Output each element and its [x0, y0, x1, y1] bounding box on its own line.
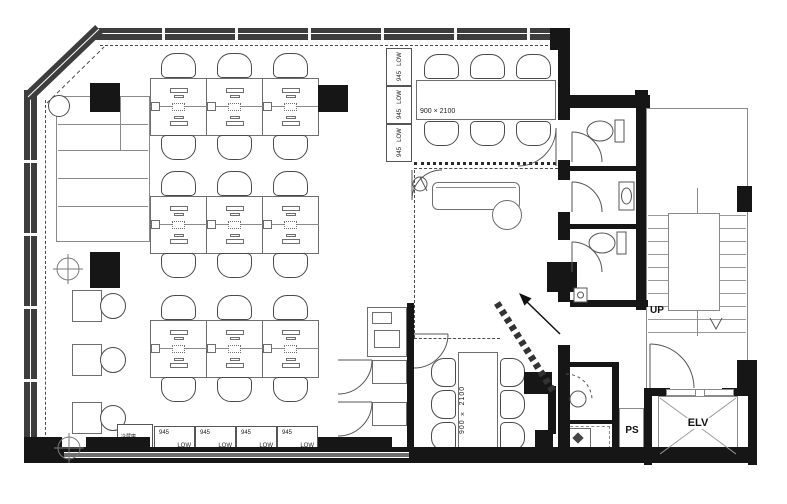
side-table — [72, 344, 102, 376]
monitor — [226, 239, 244, 244]
side-table — [72, 402, 102, 434]
low-cabinet: LOW945 — [386, 124, 412, 162]
desk-tray — [228, 221, 241, 229]
keyboard — [230, 234, 240, 237]
low-cabinet: LOW945 — [386, 86, 412, 124]
chair — [516, 121, 551, 146]
chair — [161, 295, 196, 320]
entry-wall — [535, 430, 553, 450]
keyboard — [230, 116, 240, 119]
chair — [500, 390, 525, 419]
elevator-label: ELV — [672, 418, 724, 429]
chair — [273, 53, 308, 78]
chair — [516, 54, 551, 79]
keyboard — [174, 337, 184, 340]
monitor — [282, 330, 300, 335]
door-arc-cabinet-1 — [338, 360, 372, 394]
elevator-east-wall — [748, 388, 757, 465]
keyboard — [286, 234, 296, 237]
monitor — [170, 121, 188, 126]
elevator-west-wall — [644, 388, 652, 465]
chair — [217, 171, 252, 196]
entry-arrow — [524, 299, 560, 334]
entry-arrow-head — [519, 293, 532, 306]
column — [524, 372, 552, 394]
chair — [161, 377, 196, 402]
round-chair — [100, 293, 126, 319]
chair — [161, 135, 196, 160]
chair — [217, 135, 252, 160]
keyboard — [230, 358, 240, 361]
monitor — [226, 206, 244, 211]
desk-tray — [172, 345, 185, 353]
bottom-wall-corner — [24, 437, 62, 449]
glass-partition — [414, 338, 500, 339]
column — [635, 90, 648, 108]
keyboard — [230, 213, 240, 216]
service-room-wall — [612, 362, 619, 462]
meeting-table-size-label: 900 × 2100 — [420, 108, 455, 115]
toilet-divider — [570, 166, 636, 171]
round-table — [492, 200, 522, 230]
desk-phone — [207, 220, 216, 229]
cabinet-size-label: 945 — [200, 430, 210, 436]
chair — [273, 295, 308, 320]
service-room-wall — [558, 362, 616, 367]
monitor — [170, 88, 188, 93]
desk-tray — [172, 221, 185, 229]
glass-partition — [414, 168, 558, 169]
cabinet-size-label: 945 — [397, 66, 403, 86]
chair — [217, 377, 252, 402]
chair — [217, 295, 252, 320]
chair — [470, 121, 505, 146]
top-window-wall — [92, 28, 558, 40]
keyboard — [230, 337, 240, 340]
elevator-sill — [704, 389, 734, 396]
toilet-divider — [570, 300, 648, 307]
chair — [273, 135, 308, 160]
meeting-room-wall — [407, 303, 414, 463]
desk-tray — [284, 345, 297, 353]
column — [90, 252, 120, 288]
glass-partition — [414, 162, 556, 165]
toilet-east-wall — [636, 108, 646, 310]
cabinet-size-label: 945 — [159, 430, 169, 436]
chamfer-wall — [28, 29, 99, 97]
side-table — [72, 290, 102, 322]
desk-tray — [228, 345, 241, 353]
desk-phone — [207, 344, 216, 353]
toilet-divider — [570, 224, 636, 229]
cabinet-size-label: 945 — [241, 430, 251, 436]
monitor — [170, 206, 188, 211]
setback-line-top — [100, 45, 558, 46]
monitor — [282, 121, 300, 126]
sofa-seat-line — [436, 187, 516, 188]
glass-partition — [414, 170, 415, 338]
keyboard — [174, 95, 184, 98]
cabinet-size-label: 945 — [282, 430, 292, 436]
chair — [424, 54, 459, 79]
service-sink — [570, 391, 586, 407]
column — [90, 83, 120, 112]
pipe-shaft-label: PS — [620, 426, 644, 436]
desk-phone — [151, 344, 160, 353]
keyboard — [174, 234, 184, 237]
core-west-wall — [558, 160, 570, 180]
column — [86, 437, 150, 449]
pantry-wall — [558, 420, 616, 424]
keyboard — [286, 337, 296, 340]
keyboard — [286, 95, 296, 98]
desk-phone — [151, 220, 160, 229]
monitor — [282, 206, 300, 211]
monitor — [226, 88, 244, 93]
desk-tray — [172, 103, 185, 111]
core-west-wall — [558, 212, 570, 240]
floor-plan: 900 × 2100 LOW945LOW945LOW945 900 × 2100… — [0, 0, 787, 504]
monitor — [282, 239, 300, 244]
door-arc-cabinet-2 — [338, 402, 372, 436]
desk-phone — [207, 102, 216, 111]
low-cabinet: LOW945 — [386, 48, 412, 86]
chair — [217, 53, 252, 78]
storage-cabinet — [372, 402, 407, 426]
stair-landing — [668, 213, 720, 311]
desk-phone — [263, 344, 272, 353]
monitor — [282, 363, 300, 368]
column — [318, 437, 392, 449]
meeting-table-size-label: 900 × 2100 — [459, 354, 466, 434]
monitor — [170, 330, 188, 335]
chair — [500, 358, 525, 387]
chair — [431, 390, 456, 419]
toilet-tank — [617, 232, 626, 254]
keyboard — [230, 95, 240, 98]
door-arc-toilet-1 — [572, 132, 602, 162]
desk-phone — [151, 102, 160, 111]
monitor — [170, 363, 188, 368]
monitor — [282, 88, 300, 93]
column — [737, 186, 752, 212]
storage-cabinet — [372, 360, 407, 384]
column — [737, 360, 757, 390]
chair — [273, 377, 308, 402]
column — [547, 262, 577, 292]
desk-tray — [284, 103, 297, 111]
monitor — [226, 330, 244, 335]
door-arc-washroom — [572, 182, 602, 212]
chair — [424, 121, 459, 146]
keyboard — [286, 358, 296, 361]
counter — [56, 96, 150, 242]
chair — [217, 253, 252, 278]
keyboard — [174, 116, 184, 119]
toilet-bowl — [587, 121, 613, 141]
monitor — [226, 363, 244, 368]
stool — [48, 95, 70, 117]
round-chair — [100, 347, 126, 373]
keyboard — [286, 213, 296, 216]
chair — [161, 53, 196, 78]
desk-phone — [263, 220, 272, 229]
monitor — [226, 121, 244, 126]
chair — [431, 358, 456, 387]
chair — [161, 171, 196, 196]
chair — [273, 253, 308, 278]
chair — [273, 171, 308, 196]
top-right-wall-cap — [550, 28, 570, 50]
chair — [161, 253, 196, 278]
core-west-wall — [558, 345, 570, 449]
desk-tray — [284, 221, 297, 229]
keyboard — [174, 358, 184, 361]
desk-phone — [263, 102, 272, 111]
toilet-tank — [615, 120, 624, 142]
column — [318, 85, 348, 112]
cabinet-size-label: 945 — [397, 142, 403, 162]
keyboard — [174, 213, 184, 216]
coat-stand — [413, 177, 427, 191]
monitor — [170, 239, 188, 244]
stairs-up-label: UP — [650, 306, 664, 316]
washbasin — [619, 182, 634, 210]
chair — [470, 54, 505, 79]
elevator-sill — [666, 389, 696, 396]
desk-tray — [228, 103, 241, 111]
window-sill — [64, 452, 409, 458]
cabinet-size-label: 945 — [397, 104, 403, 124]
keyboard — [286, 116, 296, 119]
setback-line-left — [45, 100, 46, 445]
toilet-bowl — [589, 233, 615, 253]
